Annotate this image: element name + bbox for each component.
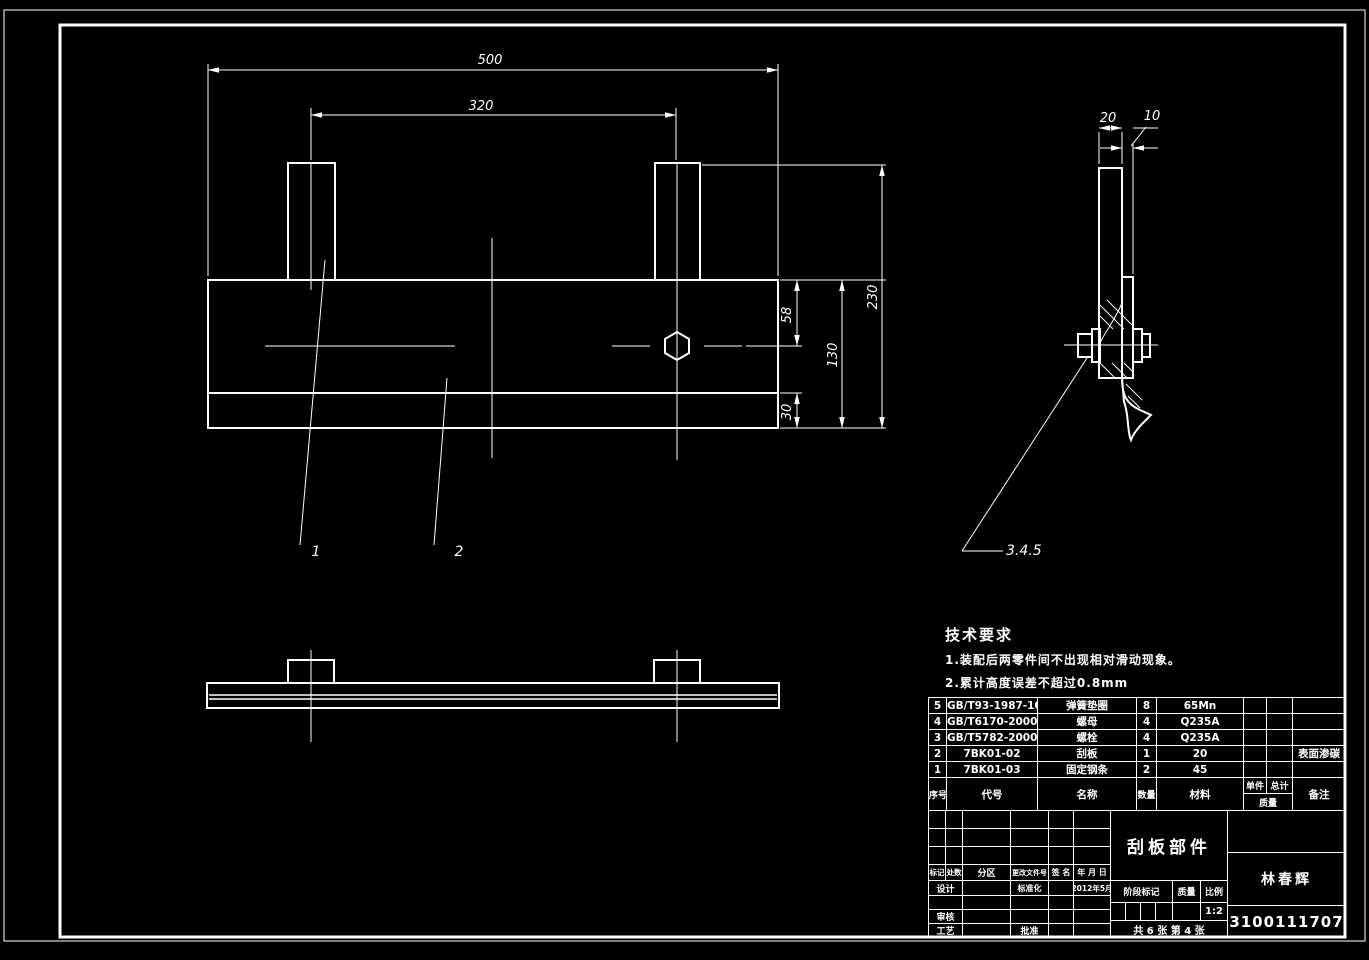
rev-cell: [945, 810, 963, 829]
cell-craft-sign: [962, 923, 1011, 938]
mass-value-cell: [1172, 902, 1201, 921]
technical-requirements: 技术要求 1.装配后两零件间不出现相对滑动现象。 2.累计高度误差不超过0.8m…: [945, 624, 1275, 691]
bom-cell-remark: [1293, 762, 1346, 778]
bom-cell-code: 7BK01-03: [947, 762, 1038, 778]
bom-cell-total: [1267, 730, 1293, 746]
bom-header-mass: 质量: [1244, 794, 1293, 811]
bom-cell-unit: [1244, 746, 1267, 762]
cell-blank: [928, 895, 963, 910]
tech-req-heading: 技术要求: [945, 624, 1275, 645]
rev-cell: [1010, 828, 1049, 847]
dim-10: 10: [1144, 109, 1161, 124]
bom-cell-qty: 4: [1137, 730, 1157, 746]
bom-cell-total: [1267, 762, 1293, 778]
bom-cell-name: 螺母: [1038, 714, 1137, 730]
cell-blank: [1073, 923, 1111, 938]
label-design: 设计: [928, 880, 963, 896]
bom-cell-total: [1267, 714, 1293, 730]
bom-header-total: 总计: [1267, 778, 1293, 794]
bom-cell-name: 刮板: [1038, 746, 1137, 762]
rev-cell: [1048, 846, 1074, 865]
cell-std-sign: [1048, 880, 1074, 896]
rev-cell: [928, 846, 946, 865]
cad-drawing-sheet: 500 320 230 130 58 30 1 2: [0, 0, 1369, 960]
bom-cell-unit: [1244, 762, 1267, 778]
cell-company: [1227, 810, 1346, 853]
side-view: 20 10 3.4.5: [962, 109, 1160, 559]
stage-cell: [1140, 902, 1156, 921]
drawing-title: 刮板部件: [1110, 810, 1228, 881]
cell-blank: [1048, 895, 1074, 910]
bom-row: 4 GB/T6170-2000-M10 螺母 4 Q235A: [929, 714, 1346, 730]
label-audit: 审核: [928, 909, 963, 924]
bottom-view: [207, 650, 779, 742]
cell-audit-sign: [962, 909, 1011, 924]
bom-cell-seq: 1: [929, 762, 947, 778]
bom-cell-qty: 4: [1137, 714, 1157, 730]
dim-230: 230: [866, 285, 881, 310]
balloon-1: 1: [312, 544, 321, 560]
bom-cell-qty: 8: [1137, 698, 1157, 714]
bom-cell-code: 7BK01-02: [947, 746, 1038, 762]
cell-blank: [1073, 909, 1111, 924]
title-block: 标记 处数 分区 更改文件号 签 名 年 月 日 设计 标准化 2012年5月 …: [928, 810, 1346, 938]
label-standardization: 标准化: [1010, 880, 1049, 896]
bom-cell-unit: [1244, 698, 1267, 714]
bom-header-code: 代号: [947, 778, 1038, 811]
bom-cell-unit: [1244, 714, 1267, 730]
rev-cell: [1048, 828, 1074, 847]
rev-cell: [945, 828, 963, 847]
dim-58: 58: [780, 307, 795, 324]
cell-blank: [1010, 909, 1049, 924]
bom-row: 3 GB/T5782-2000-M10 螺栓 4 Q235A: [929, 730, 1346, 746]
bom-cell-name: 固定钢条: [1038, 762, 1137, 778]
dim-500: 500: [478, 53, 503, 68]
rev-cell: [928, 810, 946, 829]
cell-blank: [1048, 909, 1074, 924]
rev-cell: [1073, 846, 1111, 865]
stage-cell: [1110, 902, 1126, 921]
label-date: 年 月 日: [1073, 864, 1111, 881]
label-signature: 签 名: [1048, 864, 1074, 881]
tech-req-item-2: 2.累计高度误差不超过0.8mm: [945, 674, 1275, 691]
label-stage-mark: 阶段标记: [1110, 880, 1173, 903]
author-name: 林春辉: [1227, 852, 1346, 906]
rev-cell: [1010, 846, 1049, 865]
bom-cell-material: 20: [1157, 746, 1244, 762]
bom-cell-qty: 2: [1137, 762, 1157, 778]
dim-30: 30: [780, 404, 795, 421]
bom-header-name: 名称: [1038, 778, 1137, 811]
bom-header-qty: 数量: [1137, 778, 1157, 811]
front-view-arrowheads: [208, 67, 885, 428]
sheet-info: 共 6 张 第 4 张: [1110, 920, 1228, 938]
balloon-2: 2: [455, 544, 464, 560]
bom-cell-total: [1267, 698, 1293, 714]
cell-blank: [962, 895, 1011, 910]
bom-header-seq: 序号: [929, 778, 947, 811]
tech-req-item-1: 1.装配后两零件间不出现相对滑动现象。: [945, 651, 1275, 668]
cell-design-sign: [962, 880, 1011, 896]
bom-cell-total: [1267, 746, 1293, 762]
bom-cell-name: 弹簧垫圈: [1038, 698, 1137, 714]
bom-cell-seq: 3: [929, 730, 947, 746]
bom-cell-material: 45: [1157, 762, 1244, 778]
label-count: 处数: [945, 864, 963, 881]
balloon-3-4-5: 3.4.5: [1006, 543, 1042, 559]
bom-row: 5 GB/T93-1987-10 弹簧垫圈 8 65Mn: [929, 698, 1346, 714]
bom-cell-material: 65Mn: [1157, 698, 1244, 714]
bom-cell-seq: 4: [929, 714, 947, 730]
bom-row: 1 7BK01-03 固定钢条 2 45: [929, 762, 1346, 778]
bom-header-unit: 单件: [1244, 778, 1267, 794]
drawing-number: 3100111707: [1227, 905, 1346, 938]
rev-cell: [1073, 810, 1111, 829]
bom-header-material: 材料: [1157, 778, 1244, 811]
bom-cell-material: Q235A: [1157, 730, 1244, 746]
bom-cell-qty: 1: [1137, 746, 1157, 762]
bom-cell-seq: 2: [929, 746, 947, 762]
bom-cell-remark: [1293, 698, 1346, 714]
front-view: 500 320 230 130 58 30 1 2: [208, 53, 886, 560]
bom-cell-code: GB/T5782-2000-M10: [947, 730, 1038, 746]
cell-blank: [1048, 923, 1074, 938]
bom-header-remark: 备注: [1293, 778, 1346, 811]
stage-cell: [1155, 902, 1173, 921]
bom-cell-remark: [1293, 714, 1346, 730]
rev-cell: [962, 810, 1011, 829]
bom-cell-code: GB/T93-1987-10: [947, 698, 1038, 714]
rev-cell: [962, 846, 1011, 865]
label-mark: 标记: [928, 864, 946, 881]
design-date: 2012年5月: [1073, 880, 1111, 896]
bom-cell-remark: 表面渗碳: [1293, 746, 1346, 762]
cell-blank: [1010, 895, 1049, 910]
label-approve: 批准: [1010, 923, 1049, 938]
rev-cell: [945, 846, 963, 865]
bom-cell-material: Q235A: [1157, 714, 1244, 730]
bom-cell-remark: [1293, 730, 1346, 746]
dim-130: 130: [826, 343, 841, 368]
scraper-hook: [1122, 378, 1151, 440]
bom-cell-code: GB/T6170-2000-M10: [947, 714, 1038, 730]
dim-20: 20: [1100, 111, 1117, 126]
dim-320: 320: [469, 99, 494, 114]
bom-cell-seq: 5: [929, 698, 947, 714]
rev-cell: [928, 828, 946, 847]
label-change-doc: 更改文件号: [1010, 864, 1049, 881]
label-craft: 工艺: [928, 923, 963, 938]
rev-cell: [1010, 810, 1049, 829]
bom-cell-unit: [1244, 730, 1267, 746]
bom-row: 2 7BK01-02 刮板 1 20 表面渗碳: [929, 746, 1346, 762]
scale-value: 1:2: [1200, 902, 1228, 921]
bom-table: 5 GB/T93-1987-10 弹簧垫圈 8 65Mn 4 GB/T6170-…: [928, 697, 1346, 811]
cell-blank: [1073, 895, 1111, 910]
label-scale: 比例: [1200, 880, 1228, 903]
bom-header-row: 序号 代号 名称 数量 材料 单件 总计 备注: [929, 778, 1346, 794]
rev-cell: [962, 828, 1011, 847]
bom-cell-name: 螺栓: [1038, 730, 1137, 746]
label-zone: 分区: [962, 864, 1011, 881]
rev-cell: [1073, 828, 1111, 847]
label-mass: 质量: [1172, 880, 1201, 903]
stage-cell: [1125, 902, 1141, 921]
rev-cell: [1048, 810, 1074, 829]
